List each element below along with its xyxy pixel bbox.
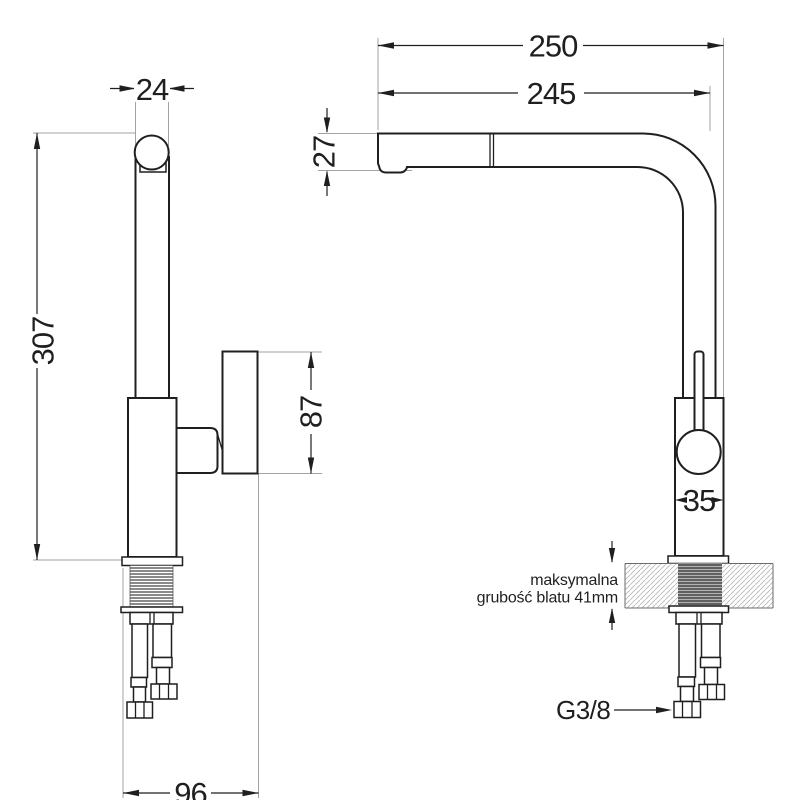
dim-spout-top-diameter: 24 <box>136 72 169 107</box>
side-left-supply-hose <box>674 624 701 718</box>
front-base-flange <box>122 557 183 566</box>
countertop-note-line1: maksymalna <box>530 572 618 589</box>
dim-body-diameter: 35 <box>683 483 715 518</box>
dim-total-height: 307 <box>26 317 61 366</box>
countertop-section <box>625 564 773 609</box>
faucet-dimension-drawing: 24 250 245 27 307 87 35 96 maksymalna gr… <box>0 0 800 800</box>
front-handle-lever <box>223 352 258 474</box>
side-mounting-washer <box>669 606 729 613</box>
front-view-faucet <box>121 136 258 719</box>
thread-size-label: G3/8 <box>556 695 610 725</box>
side-hose-bracket <box>676 613 722 625</box>
side-right-supply-hose <box>699 624 725 700</box>
front-hose-bracket <box>130 613 173 625</box>
dim-reach-total: 250 <box>529 29 578 64</box>
dim-spout-tip-height: 27 <box>307 136 342 168</box>
side-spout-outline <box>378 134 716 399</box>
dim-base-depth: 96 <box>174 776 206 800</box>
front-body <box>128 398 177 557</box>
front-threaded-stem <box>130 566 173 608</box>
side-handle-ball <box>677 430 721 474</box>
dim-reach-spout: 245 <box>527 76 576 111</box>
countertop-note-line2: grubość blatu 41mm <box>477 590 618 607</box>
dim-handle-length: 87 <box>294 396 329 428</box>
technical-drawing-canvas: 24 250 245 27 307 87 35 96 maksymalna gr… <box>0 0 800 800</box>
front-right-supply-hose <box>151 624 177 699</box>
front-mounting-washer <box>121 607 183 613</box>
front-spout-top-circle <box>135 136 169 170</box>
front-left-supply-hose <box>127 624 153 718</box>
side-view-faucet <box>378 134 773 718</box>
front-handle-hub <box>177 428 218 473</box>
side-base-flange <box>668 556 729 564</box>
side-handle-stem <box>695 352 704 437</box>
side-threaded-stem <box>678 564 722 608</box>
